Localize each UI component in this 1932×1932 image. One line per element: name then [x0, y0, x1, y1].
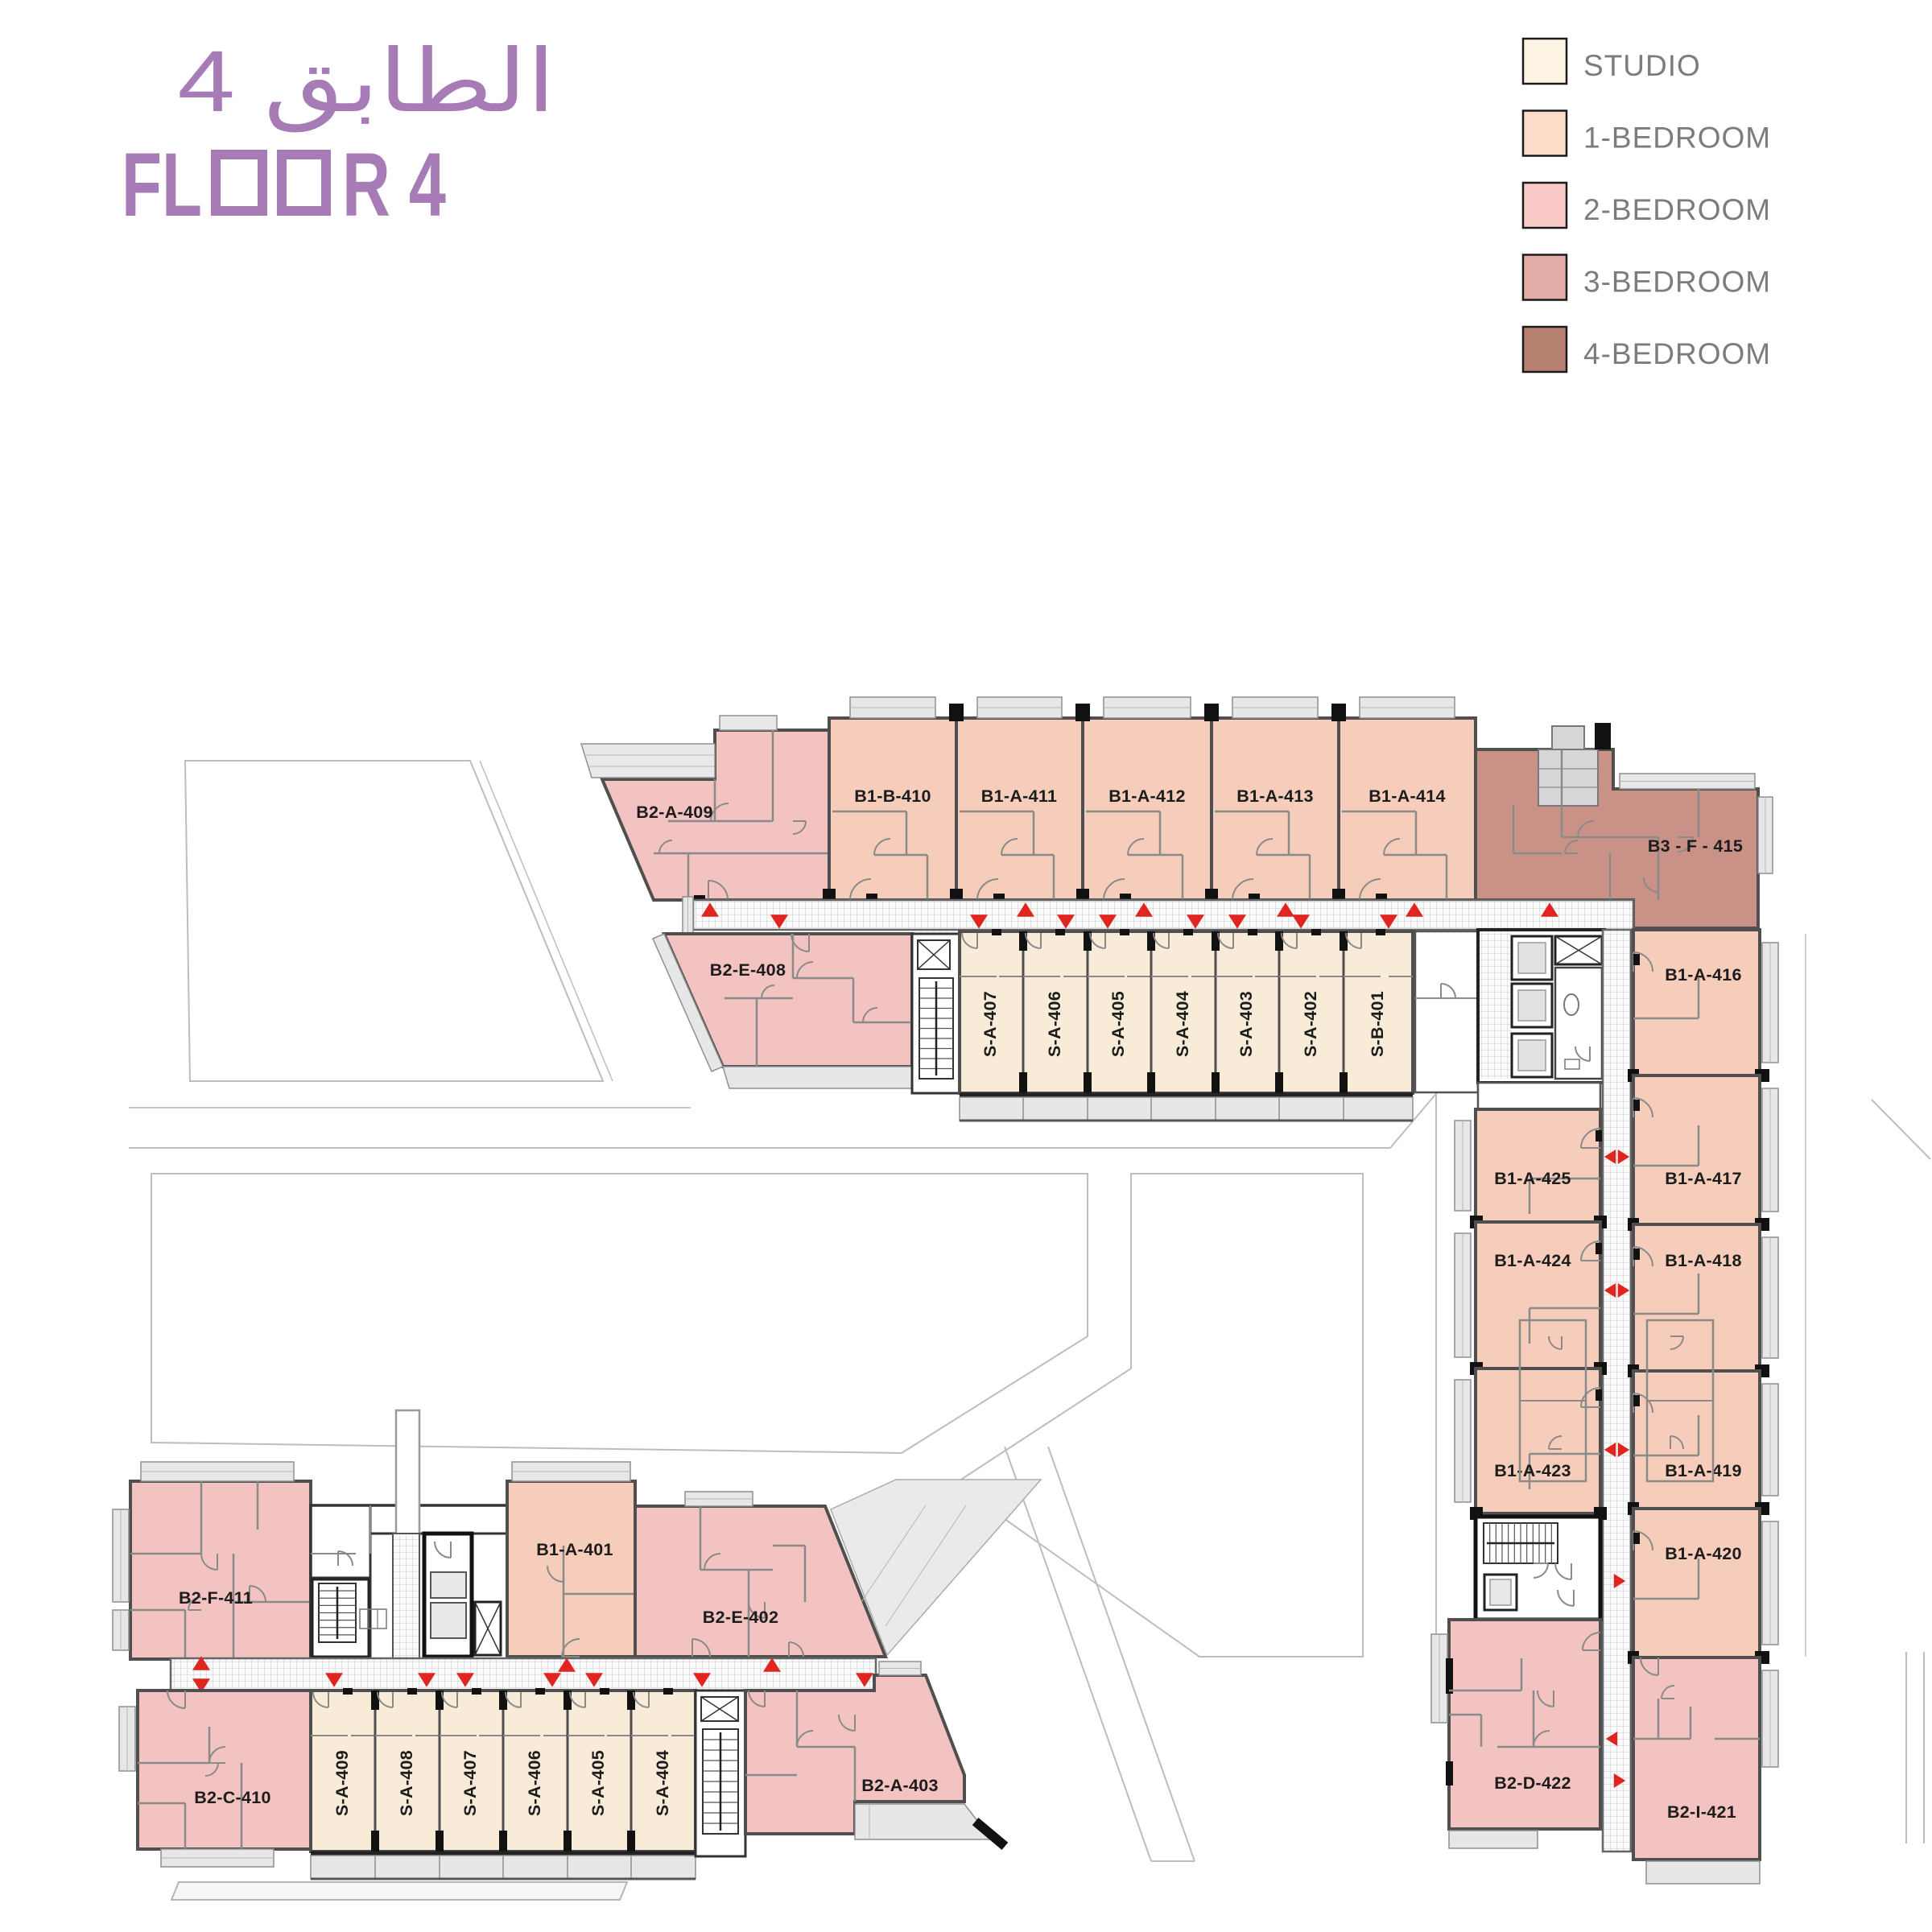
- svg-text:S-A-405: S-A-405: [588, 1750, 608, 1816]
- svg-text:R 4: R 4: [342, 134, 446, 235]
- svg-text:B1-A-420: B1-A-420: [1665, 1544, 1742, 1563]
- svg-text:2-BEDROOM: 2-BEDROOM: [1583, 193, 1771, 226]
- svg-text:3-BEDROOM: 3-BEDROOM: [1583, 266, 1771, 299]
- svg-text:B2-C-410: B2-C-410: [194, 1788, 271, 1807]
- svg-text:B2-I-421: B2-I-421: [1667, 1802, 1736, 1822]
- svg-text:S-A-402: S-A-402: [1301, 991, 1320, 1057]
- svg-text:B1-A-425: B1-A-425: [1494, 1169, 1571, 1188]
- svg-text:S-A-407: S-A-407: [460, 1750, 480, 1816]
- svg-text:S-A-404: S-A-404: [1173, 991, 1192, 1057]
- svg-text:B1-A-401: B1-A-401: [536, 1540, 613, 1559]
- svg-text:1-BEDROOM: 1-BEDROOM: [1583, 122, 1771, 155]
- svg-text:B1-A-413: B1-A-413: [1236, 786, 1314, 806]
- svg-text:S-A-409: S-A-409: [332, 1750, 352, 1816]
- svg-text:B1-A-417: B1-A-417: [1665, 1169, 1742, 1188]
- svg-text:B1-A-411: B1-A-411: [981, 786, 1057, 806]
- svg-text:S-A-403: S-A-403: [1236, 991, 1256, 1057]
- svg-text:FL: FL: [122, 134, 202, 235]
- svg-text:B2-E-402: B2-E-402: [703, 1608, 778, 1627]
- svg-text:B1-A-412: B1-A-412: [1108, 786, 1186, 806]
- svg-text:الطابق 4: الطابق 4: [177, 34, 555, 134]
- svg-text:STUDIO: STUDIO: [1583, 49, 1701, 82]
- svg-text:S-A-407: S-A-407: [980, 991, 1000, 1057]
- svg-text:B1-A-423: B1-A-423: [1494, 1461, 1571, 1480]
- svg-text:B1-A-419: B1-A-419: [1665, 1461, 1742, 1480]
- svg-text:B2-D-422: B2-D-422: [1494, 1773, 1571, 1793]
- svg-text:S-A-405: S-A-405: [1108, 991, 1128, 1057]
- svg-text:B2-E-408: B2-E-408: [710, 960, 786, 980]
- svg-text:S-A-406: S-A-406: [525, 1750, 544, 1816]
- svg-text:S-A-408: S-A-408: [397, 1750, 416, 1816]
- svg-text:B1-A-418: B1-A-418: [1665, 1251, 1742, 1270]
- svg-text:B1-B-410: B1-B-410: [854, 786, 931, 806]
- svg-text:4-BEDROOM: 4-BEDROOM: [1583, 337, 1771, 370]
- svg-text:S-A-406: S-A-406: [1045, 991, 1064, 1057]
- svg-text:S-B-401: S-B-401: [1368, 991, 1387, 1057]
- svg-text:B2-A-409: B2-A-409: [636, 803, 713, 822]
- svg-text:B1-A-414: B1-A-414: [1368, 786, 1446, 806]
- svg-text:B2-F-411: B2-F-411: [179, 1588, 253, 1608]
- svg-text:B3 - F - 415: B3 - F - 415: [1648, 836, 1743, 856]
- svg-text:B1-A-416: B1-A-416: [1665, 965, 1742, 985]
- svg-text:S-A-404: S-A-404: [653, 1750, 672, 1816]
- svg-text:B1-A-424: B1-A-424: [1494, 1251, 1571, 1270]
- svg-text:B2-A-403: B2-A-403: [861, 1776, 939, 1795]
